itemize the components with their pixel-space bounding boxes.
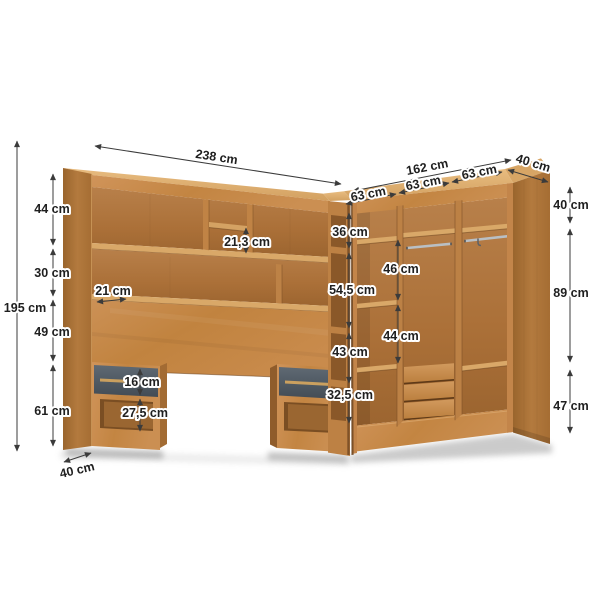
dim-niche-height: 27,5 cm: [122, 406, 168, 420]
wardrobe-stile: [507, 183, 513, 433]
wardrobe-side-panel: [513, 170, 550, 444]
furniture-dimension-diagram: 238 cm 162 cm 40 cm 63 cm 63 cm 63 cm 19…: [0, 0, 600, 600]
wardrobe-unit: [344, 158, 550, 455]
headboard-unit: [63, 168, 352, 456]
dim-top-section: 44 cm: [34, 202, 69, 216]
dim-leg-section: 61 cm: [34, 404, 69, 418]
dim-total-height: 195 cm: [4, 301, 46, 315]
dim-right-middle: 89 cm: [553, 286, 588, 300]
dim-cubby-height: 21,3 cm: [224, 235, 270, 249]
diagram-canvas: 238 cm 162 cm 40 cm 63 cm 63 cm 63 cm 19…: [0, 0, 600, 600]
dim-corner-lower: 43 cm: [332, 345, 367, 359]
wardrobe-drawers: [404, 363, 454, 419]
dim-drawer-height: 16 cm: [124, 375, 159, 389]
divider: [203, 199, 209, 250]
dim-hanging-lower: 44 cm: [383, 329, 418, 343]
dim-shelf-section: 30 cm: [34, 266, 69, 280]
dim-corner-bottom: 32,5 cm: [327, 388, 373, 402]
dim-corner-top: 36 cm: [332, 225, 367, 239]
dim-corner-upper: 54,5 cm: [329, 283, 375, 297]
dim-shelf-depth: 21 cm: [95, 284, 130, 298]
dim-headboard-width: 238 cm: [195, 147, 239, 167]
wardrobe-divider: [455, 200, 462, 420]
partial-divider: [276, 264, 282, 304]
dim-panel-section: 49 cm: [34, 325, 69, 339]
corner-shelf-column: [328, 201, 350, 456]
dim-hanging-upper: 46 cm: [383, 262, 418, 276]
dim-nightstand-depth: 40 cm: [58, 459, 96, 481]
dim-right-top: 40 cm: [553, 198, 588, 212]
dim-right-bottom: 47 cm: [553, 399, 588, 413]
